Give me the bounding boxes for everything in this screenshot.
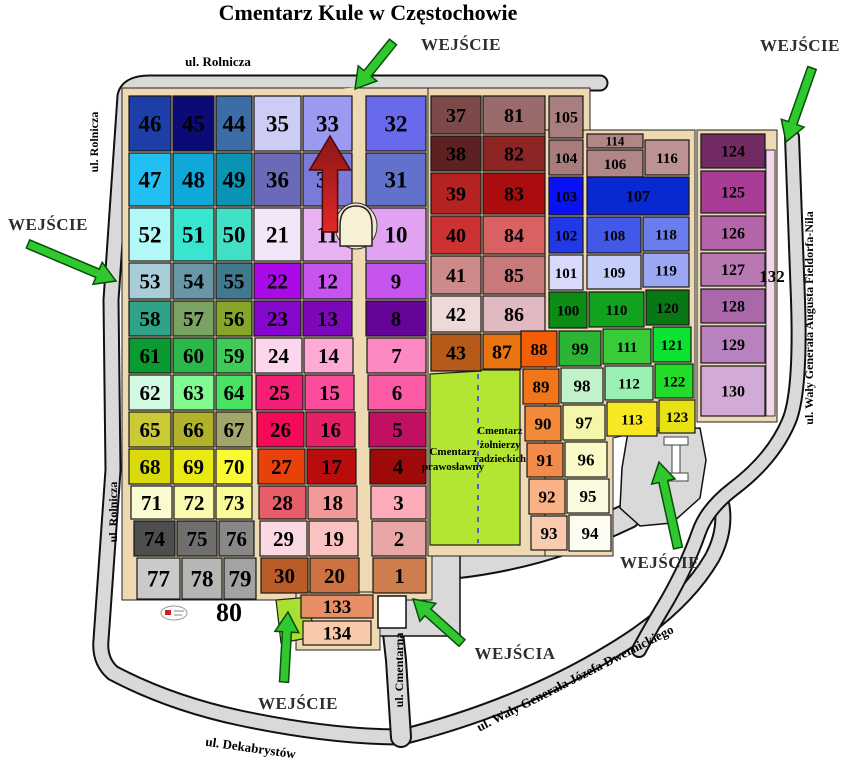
plot-66: 66	[173, 412, 214, 447]
plot-number: 12	[317, 269, 338, 293]
plot-number: 3	[393, 491, 404, 515]
plot-129: 129	[701, 326, 765, 363]
plot-number: 7	[391, 344, 402, 368]
plot-52: 52	[129, 208, 171, 261]
plot-9: 9	[366, 263, 426, 299]
plot-number: 96	[578, 450, 595, 469]
plot-111: 111	[603, 329, 651, 364]
plot-number: 113	[621, 412, 643, 428]
plot-number: 114	[606, 134, 625, 149]
plot-number: 116	[656, 151, 678, 167]
plot-5: 5	[369, 412, 426, 447]
plot-number: 8	[391, 307, 402, 331]
plot-95: 95	[567, 479, 609, 513]
plot-number: 112	[618, 376, 640, 392]
plot-22: 22	[254, 263, 301, 299]
plot-number: 87	[492, 342, 512, 364]
plot-94: 94	[569, 515, 611, 551]
plot-number: 92	[539, 487, 556, 506]
plot-91: 91	[527, 443, 563, 477]
plot-104: 104	[549, 140, 583, 175]
plot-number: 79	[229, 567, 252, 592]
plot-24: 24	[255, 338, 302, 373]
plot-number: 53	[140, 269, 161, 293]
entrance-label-1: WEJŚCIE	[760, 36, 840, 55]
plot-16: 16	[306, 412, 355, 447]
plot-6: 6	[368, 375, 426, 410]
plot-number: 24	[268, 344, 290, 368]
plot-82: 82	[483, 136, 545, 171]
area-label-line: Cmentarz	[478, 426, 523, 437]
plot-67: 67	[216, 412, 252, 447]
plot-101: 101	[549, 255, 583, 290]
plot-number: 36	[266, 168, 289, 193]
plot-number: 119	[655, 263, 677, 279]
plot-90: 90	[525, 406, 561, 441]
plot-number: 38	[446, 144, 466, 166]
plot-1: 1	[373, 558, 426, 593]
plot-103: 103	[549, 177, 583, 215]
plot-96: 96	[565, 442, 607, 477]
plot-number: 64	[224, 381, 246, 405]
plot-number: 23	[267, 307, 288, 331]
plot-133: 133	[301, 595, 373, 618]
plot-number: 15	[319, 381, 340, 405]
plot-38: 38	[431, 136, 481, 171]
plot-72: 72	[174, 486, 214, 519]
plot-113: 113	[607, 402, 657, 436]
plot-number: 82	[504, 144, 524, 166]
plot-number: 122	[663, 374, 686, 390]
plot-number: 47	[139, 168, 162, 193]
plot-54: 54	[173, 263, 214, 299]
plot-number: 75	[187, 527, 208, 551]
plot-102: 102	[549, 217, 583, 253]
plot-number: 6	[392, 381, 403, 405]
plot-28: 28	[259, 486, 306, 519]
plot-47: 47	[129, 153, 171, 206]
plot-78: 78	[182, 558, 222, 599]
plot-number: 49	[223, 168, 246, 193]
plot-number: 85	[504, 265, 524, 287]
entrance-label-0: WEJŚCIE	[421, 35, 501, 54]
plot-20: 20	[310, 558, 359, 593]
plot-number: 81	[504, 105, 524, 127]
street-label-2: ul. Rolnicza	[106, 482, 120, 543]
plot-number: 2	[394, 527, 405, 551]
plot-number: 100	[557, 303, 580, 319]
entrance-label-4: WEJŚCIA	[475, 644, 556, 663]
plot-42: 42	[431, 296, 481, 332]
area-label-1: Cmentarzżołnierzyradzieckich	[474, 426, 526, 465]
street-label-1: ul. Rolnicza	[87, 112, 101, 173]
plot-106: 106	[587, 150, 643, 177]
plot-119: 119	[643, 253, 689, 287]
plot-93: 93	[531, 516, 567, 550]
plot-49: 49	[216, 153, 252, 206]
plot-number: 63	[183, 381, 204, 405]
plot-108: 108	[587, 217, 641, 253]
plot-35: 35	[254, 96, 301, 151]
plot-number: 128	[721, 299, 745, 316]
plot-number: 93	[541, 524, 558, 543]
plot-50: 50	[216, 208, 252, 261]
plot-29: 29	[260, 521, 307, 556]
plot-68: 68	[129, 449, 171, 484]
plot-23: 23	[254, 301, 301, 336]
entrance-arrow-left-icon	[26, 240, 116, 284]
plot-number: 51	[182, 223, 205, 248]
plot-number: 106	[604, 157, 627, 173]
plot-55: 55	[216, 263, 252, 299]
plot-116: 116	[645, 140, 689, 175]
plot-number: 65	[140, 418, 161, 442]
entrance-label-2: WEJŚCIE	[8, 215, 88, 234]
plot-3: 3	[371, 486, 426, 519]
plot-number: 123	[666, 410, 689, 426]
plot-number: 18	[322, 491, 343, 515]
plot-39: 39	[431, 173, 481, 214]
plot-number: 5	[392, 418, 403, 442]
plot-number: 30	[274, 564, 295, 588]
street-label-0: ul. Rolnicza	[185, 54, 251, 69]
plot-number: 50	[223, 223, 246, 248]
plot-56: 56	[216, 301, 252, 336]
plot-107: 107	[587, 177, 689, 215]
plot-27: 27	[258, 449, 305, 484]
plot-number: 44	[223, 112, 247, 137]
plot-number: 46	[139, 112, 162, 137]
plot-99: 99	[559, 331, 601, 366]
area-label-line: radzieckich	[474, 454, 526, 465]
plot-45: 45	[173, 96, 214, 151]
plot-79: 79	[224, 558, 256, 599]
logo-badge	[161, 606, 187, 620]
plot-number: 126	[721, 226, 745, 243]
plot-number: 41	[446, 265, 466, 287]
plot-number: 21	[266, 223, 289, 248]
plot-number: 129	[721, 337, 745, 354]
plot-51: 51	[173, 208, 214, 261]
plot-number: 130	[721, 384, 745, 401]
plot-44: 44	[216, 96, 252, 151]
plot-121: 121	[653, 327, 691, 362]
plot-43: 43	[431, 334, 481, 371]
plot-74: 74	[134, 521, 175, 556]
entrance-label-3: WEJŚCIE	[258, 694, 338, 713]
plot-118: 118	[643, 217, 689, 251]
plot-number: 105	[554, 110, 578, 127]
plot-69: 69	[173, 449, 214, 484]
plot-number: 84	[504, 225, 524, 247]
plot-31: 31	[366, 153, 426, 206]
plot-130: 130	[701, 366, 765, 416]
plot-59: 59	[216, 338, 252, 373]
plot-98: 98	[561, 368, 603, 403]
plot-76: 76	[219, 521, 254, 556]
plot-37: 37	[431, 96, 481, 134]
cemetery-map: 4645443533323781105474849363431388210411…	[0, 0, 851, 775]
plot-19: 19	[309, 521, 358, 556]
plot-73: 73	[216, 486, 252, 519]
plot-number: 26	[270, 418, 291, 442]
plot-number: 98	[574, 376, 591, 395]
plot-number: 83	[504, 184, 524, 206]
plot-64: 64	[216, 375, 252, 410]
plot-number: 54	[183, 269, 205, 293]
area-label-line: żołnierzy	[480, 440, 522, 451]
plot-112: 112	[605, 366, 653, 400]
plot-number: 110	[606, 303, 628, 319]
plot-7: 7	[367, 338, 426, 373]
plot-number: 25	[269, 381, 290, 405]
plot-number: 59	[224, 344, 245, 368]
plot-number: 42	[446, 304, 466, 326]
plot-number: 27	[271, 455, 292, 479]
plot-65: 65	[129, 412, 171, 447]
plot-124: 124	[701, 134, 765, 168]
plot-30: 30	[261, 558, 308, 593]
plot-number: 95	[580, 487, 597, 506]
plot-4: 4	[370, 449, 426, 484]
plot-number: 1	[394, 564, 405, 588]
plot-number: 78	[191, 567, 214, 592]
plot-125: 125	[701, 171, 765, 213]
plot-128: 128	[701, 289, 765, 323]
plot-number: 31	[385, 168, 408, 193]
plot-number: 71	[141, 491, 162, 515]
plot-number: 102	[555, 228, 578, 244]
plot-number: 67	[224, 418, 245, 442]
plot-number: 43	[446, 343, 466, 365]
plot-number: 16	[320, 418, 341, 442]
plot-41: 41	[431, 256, 481, 294]
misc-label-132: 132	[759, 267, 785, 286]
plot-number: 108	[603, 228, 626, 244]
street-label-6: ul. Wały Generała Józefa Dwernickiego	[474, 622, 676, 735]
plot-number: 33	[316, 112, 339, 137]
street-label-3: ul. Wały Generała Augusta Fieldorfa-Nila	[802, 211, 816, 424]
plot-number: 76	[226, 527, 247, 551]
plot-number: 66	[183, 418, 204, 442]
plot-number: 13	[317, 307, 338, 331]
plot-12: 12	[303, 263, 352, 299]
plot-number: 29	[273, 527, 294, 551]
plot-89: 89	[523, 369, 559, 404]
plot-number: 104	[555, 151, 578, 167]
plot-number: 62	[140, 381, 161, 405]
plot-84: 84	[483, 216, 545, 254]
plot-number: 37	[446, 105, 466, 127]
plot-number: 109	[603, 265, 626, 281]
plot-21: 21	[254, 208, 301, 261]
plot-122: 122	[655, 364, 693, 398]
area-label-line: Cmentarz	[429, 446, 476, 458]
plot-120: 120	[646, 290, 689, 325]
plot-number: 35	[266, 112, 289, 137]
plot-17: 17	[307, 449, 356, 484]
plot-32: 32	[366, 96, 426, 151]
plot-18: 18	[308, 486, 357, 519]
plot-87: 87	[483, 334, 521, 369]
plot-62: 62	[129, 375, 171, 410]
plot-number: 61	[140, 344, 161, 368]
plot-number: 14	[318, 344, 340, 368]
plot-40: 40	[431, 216, 481, 254]
entrance-label-5: WEJŚCIE	[620, 553, 700, 572]
plot-109: 109	[587, 255, 641, 289]
misc-label-80: 80	[216, 598, 242, 627]
plot-number: 45	[182, 112, 205, 137]
plot-126: 126	[701, 216, 765, 250]
plot-number: 9	[391, 269, 402, 293]
plot-number: 68	[140, 455, 161, 479]
plot-number: 58	[140, 307, 161, 331]
plot-number: 90	[535, 414, 552, 433]
plot-105: 105	[549, 96, 583, 138]
entrance-arrow-top-right-icon	[781, 67, 816, 143]
plot-number: 124	[721, 144, 745, 161]
plot-100: 100	[549, 292, 587, 328]
plot-number: 134	[323, 624, 352, 645]
plot-25: 25	[256, 375, 303, 410]
chapel-icon	[340, 206, 372, 246]
plot-number: 40	[446, 225, 466, 247]
plot-number: 72	[184, 491, 205, 515]
plot-134: 134	[303, 621, 371, 645]
plot-number: 99	[572, 339, 589, 358]
map-title: Cmentarz Kule w Częstochowie	[219, 0, 518, 25]
plot-number: 127	[721, 262, 745, 279]
plot-75: 75	[177, 521, 217, 556]
plot-110: 110	[589, 292, 644, 327]
plot-13: 13	[303, 301, 352, 336]
plot-53: 53	[129, 263, 171, 299]
plot-number: 17	[321, 455, 342, 479]
plot-number: 57	[183, 307, 204, 331]
cemetery-map-page: 4645443533323781105474849363431388210411…	[0, 0, 851, 775]
plot-number: 103	[555, 189, 578, 205]
street-label-5: ul. Dekabrystów	[205, 734, 298, 762]
plot-58: 58	[129, 301, 171, 336]
plot-number: 101	[555, 266, 578, 282]
plot-number: 73	[224, 491, 245, 515]
plot-number: 74	[144, 527, 166, 551]
street-label-4: ul. Cmentarna	[392, 633, 406, 708]
plot-number: 32	[385, 112, 408, 137]
plot-number: 86	[504, 304, 524, 326]
plot-number: 118	[655, 227, 677, 243]
plot-number: 10	[385, 223, 408, 248]
plot-number: 91	[537, 451, 554, 470]
plot-number: 125	[721, 185, 745, 202]
plot-92: 92	[529, 479, 565, 514]
plot-88: 88	[521, 331, 557, 367]
plot-46: 46	[129, 96, 171, 151]
plot-number: 70	[224, 455, 245, 479]
plot-2: 2	[372, 521, 426, 556]
plot-number: 48	[182, 168, 205, 193]
plot-number: 107	[626, 189, 650, 206]
plot-86: 86	[483, 296, 545, 332]
plot-number: 121	[661, 338, 684, 354]
plot-number: 22	[267, 269, 288, 293]
plot-57: 57	[173, 301, 214, 336]
plot-number: 94	[582, 524, 600, 543]
plot-number: 4	[393, 455, 404, 479]
plot-97: 97	[563, 405, 605, 440]
plot-number: 39	[446, 184, 466, 206]
plot-14: 14	[304, 338, 353, 373]
plot-71: 71	[131, 486, 172, 519]
plot-70: 70	[216, 449, 252, 484]
plot-81: 81	[483, 96, 545, 134]
plot-26: 26	[257, 412, 304, 447]
plot-number: 89	[533, 377, 550, 396]
plot-83: 83	[483, 173, 545, 214]
gate-building	[378, 596, 406, 628]
plot-number: 88	[531, 340, 548, 359]
plot-number: 20	[324, 564, 345, 588]
plot-number: 77	[147, 567, 170, 592]
plot-63: 63	[173, 375, 214, 410]
plot-48: 48	[173, 153, 214, 206]
plot-number: 52	[139, 223, 162, 248]
plot-114: 114	[587, 134, 643, 149]
plot-77: 77	[137, 558, 180, 599]
plot-127: 127	[701, 253, 765, 286]
plot-60: 60	[173, 338, 214, 373]
plot-number: 133	[323, 597, 352, 618]
plot-15: 15	[305, 375, 354, 410]
plot-number: 55	[224, 269, 245, 293]
plot-36: 36	[254, 153, 301, 206]
plot-number: 120	[656, 301, 679, 317]
plot-8: 8	[366, 301, 426, 336]
plot-number: 97	[576, 413, 594, 432]
plot-number: 28	[272, 491, 293, 515]
plot-number: 60	[183, 344, 204, 368]
plot-61: 61	[129, 338, 171, 373]
plot-123: 123	[659, 400, 695, 433]
plot-number: 111	[617, 340, 638, 356]
plot-number: 19	[323, 527, 344, 551]
plot-number: 69	[183, 455, 204, 479]
plot-number: 56	[224, 307, 245, 331]
plot-85: 85	[483, 256, 545, 294]
